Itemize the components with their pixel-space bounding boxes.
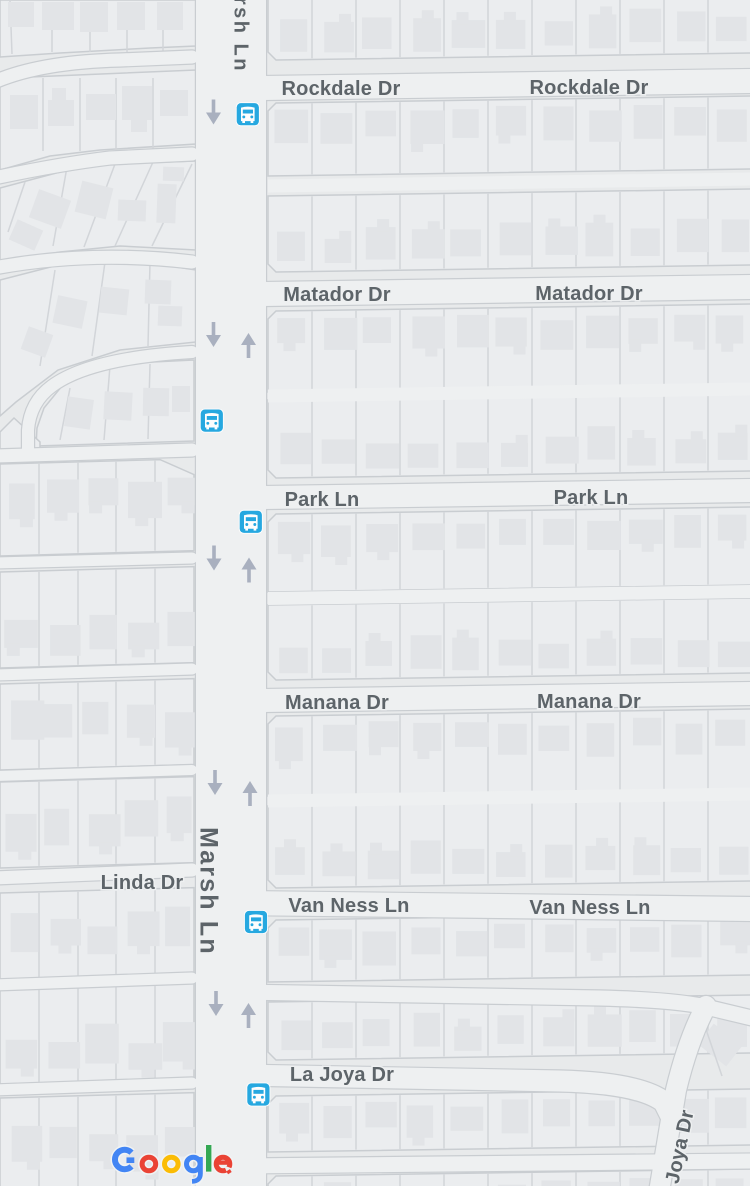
svg-text:Matador Dr: Matador Dr [535, 283, 643, 305]
svg-text:Manana Dr: Manana Dr [285, 692, 389, 714]
svg-text:Park Ln: Park Ln [554, 487, 629, 509]
svg-text:Van Ness Ln: Van Ness Ln [288, 895, 409, 917]
svg-text:Marsh Ln: Marsh Ln [195, 827, 223, 956]
svg-text:La Joya Dr: La Joya Dr [290, 1064, 394, 1086]
svg-text:Linda Dr: Linda Dr [101, 872, 184, 894]
svg-text:Rockdale Dr: Rockdale Dr [282, 78, 401, 100]
svg-text:Rockdale Dr: Rockdale Dr [530, 77, 649, 99]
svg-text:Van Ness Ln: Van Ness Ln [529, 897, 650, 919]
svg-text:Matador Dr: Matador Dr [283, 284, 391, 306]
svg-text:Marsh Ln: Marsh Ln [230, 0, 252, 73]
svg-text:Manana Dr: Manana Dr [537, 691, 641, 713]
svg-text:Park Ln: Park Ln [285, 489, 360, 511]
